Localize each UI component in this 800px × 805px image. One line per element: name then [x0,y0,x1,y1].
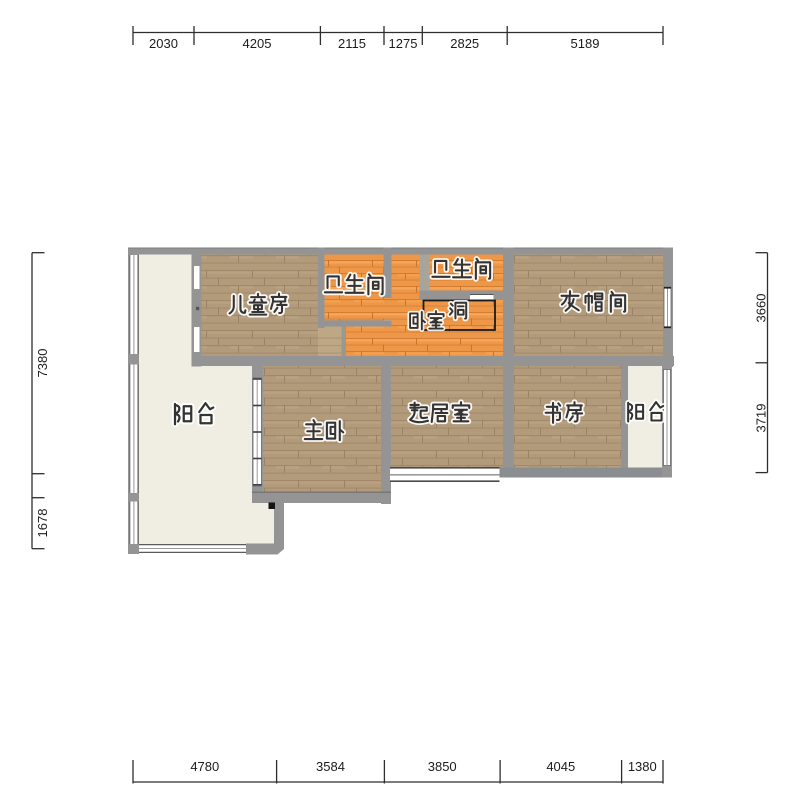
svg-text:2115: 2115 [338,36,366,51]
svg-text:7380: 7380 [35,349,50,378]
svg-text:2030: 2030 [149,36,178,51]
svg-text:3719: 3719 [754,404,769,433]
svg-text:1678: 1678 [35,509,50,538]
svg-text:1275: 1275 [389,36,418,51]
svg-text:5189: 5189 [571,36,600,51]
svg-text:4045: 4045 [546,759,575,774]
svg-text:4780: 4780 [190,759,219,774]
svg-text:3584: 3584 [316,759,345,774]
svg-text:3660: 3660 [754,294,769,323]
svg-text:2825: 2825 [450,36,479,51]
svg-text:3850: 3850 [428,759,457,774]
svg-text:4205: 4205 [243,36,272,51]
svg-text:1380: 1380 [628,759,657,774]
